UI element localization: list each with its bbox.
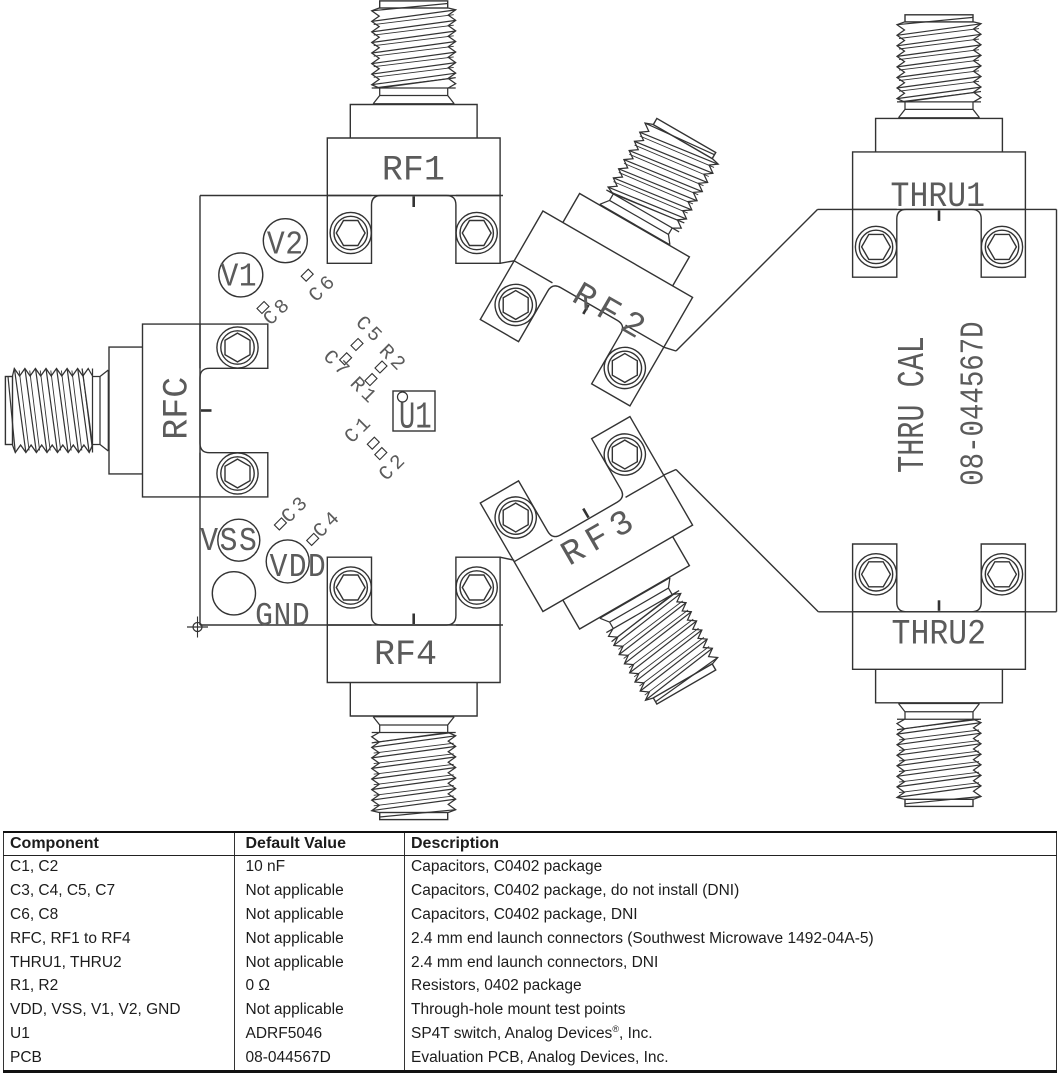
svg-text:08-044567D: 08-044567D — [956, 321, 993, 485]
svg-text:C8: C8 — [259, 293, 297, 331]
svg-text:THRU1: THRU1 — [891, 177, 985, 217]
svg-text:VDD: VDD — [270, 550, 327, 587]
svg-text:C3: C3 — [277, 491, 315, 529]
svg-text:RFC: RFC — [158, 377, 198, 440]
svg-text:C4: C4 — [309, 505, 347, 543]
svg-text:V1: V1 — [220, 259, 257, 296]
svg-text:U1: U1 — [399, 396, 432, 440]
svg-text:C6: C6 — [305, 270, 343, 308]
svg-text:C5: C5 — [350, 312, 388, 350]
svg-text:THRU2: THRU2 — [892, 614, 986, 654]
svg-text:C2: C2 — [375, 448, 413, 486]
svg-text:RF3: RF3 — [555, 499, 648, 576]
svg-text:C1: C1 — [341, 411, 379, 449]
svg-text:GND: GND — [255, 599, 310, 636]
svg-text:V2: V2 — [267, 227, 304, 264]
svg-text:RF2: RF2 — [565, 275, 658, 352]
svg-text:RF4: RF4 — [374, 635, 437, 675]
svg-text:THRU CAL: THRU CAL — [893, 336, 936, 473]
svg-text:VSS: VSS — [200, 524, 258, 561]
svg-text:C7: C7 — [317, 346, 355, 384]
svg-text:RF1: RF1 — [382, 151, 445, 191]
